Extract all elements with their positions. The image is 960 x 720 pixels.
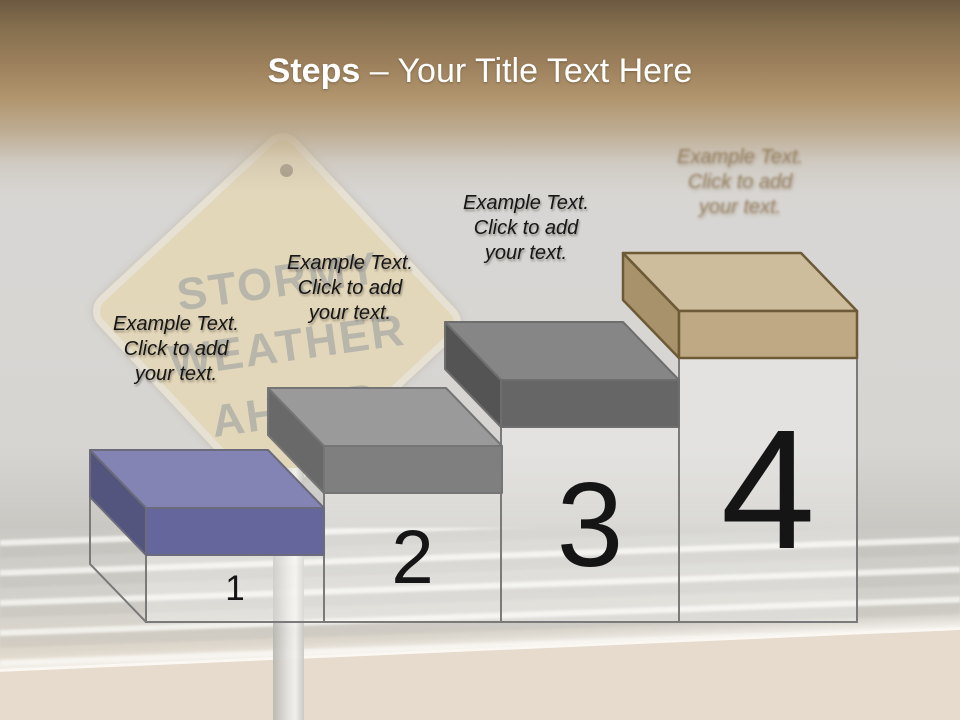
title-regular: Your Title Text Here: [397, 52, 692, 90]
step-1-number: 1: [146, 555, 324, 622]
caption-line: Click to add: [260, 276, 440, 301]
caption-line: Example Text.: [86, 312, 266, 337]
step-3-caption[interactable]: Example Text. Click to add your text.: [436, 191, 616, 266]
caption-line: Example Text.: [260, 251, 440, 276]
slide-title: Steps – Your Title Text Here: [0, 52, 960, 91]
step-1-caption[interactable]: Example Text. Click to add your text.: [86, 312, 266, 387]
step-3-slab-front: [501, 380, 679, 427]
title-dash: –: [370, 52, 389, 90]
caption-line: your text.: [436, 241, 616, 266]
caption-line: your text.: [260, 301, 440, 326]
caption-line: Click to add: [650, 170, 830, 195]
caption-line: your text.: [86, 362, 266, 387]
slide: STORMY WEATHER AHEAD 1 2 3 4 Example Tex…: [0, 0, 960, 720]
caption-line: Click to add: [86, 337, 266, 362]
step-1-slab-front: [146, 508, 324, 555]
step-2-number: 2: [324, 493, 501, 622]
step-4-slab-front: [679, 311, 857, 358]
caption-line: Example Text.: [436, 191, 616, 216]
step-2-caption[interactable]: Example Text. Click to add your text.: [260, 251, 440, 326]
step-3-number: 3: [501, 427, 679, 622]
title-bold: Steps: [268, 52, 361, 90]
step-4-caption[interactable]: Example Text. Click to add your text.: [650, 145, 830, 220]
caption-line: your text.: [650, 195, 830, 220]
step-2-slab-front: [324, 446, 502, 493]
caption-line: Example Text.: [650, 145, 830, 170]
step-4-number: 4: [679, 358, 857, 622]
caption-line: Click to add: [436, 216, 616, 241]
